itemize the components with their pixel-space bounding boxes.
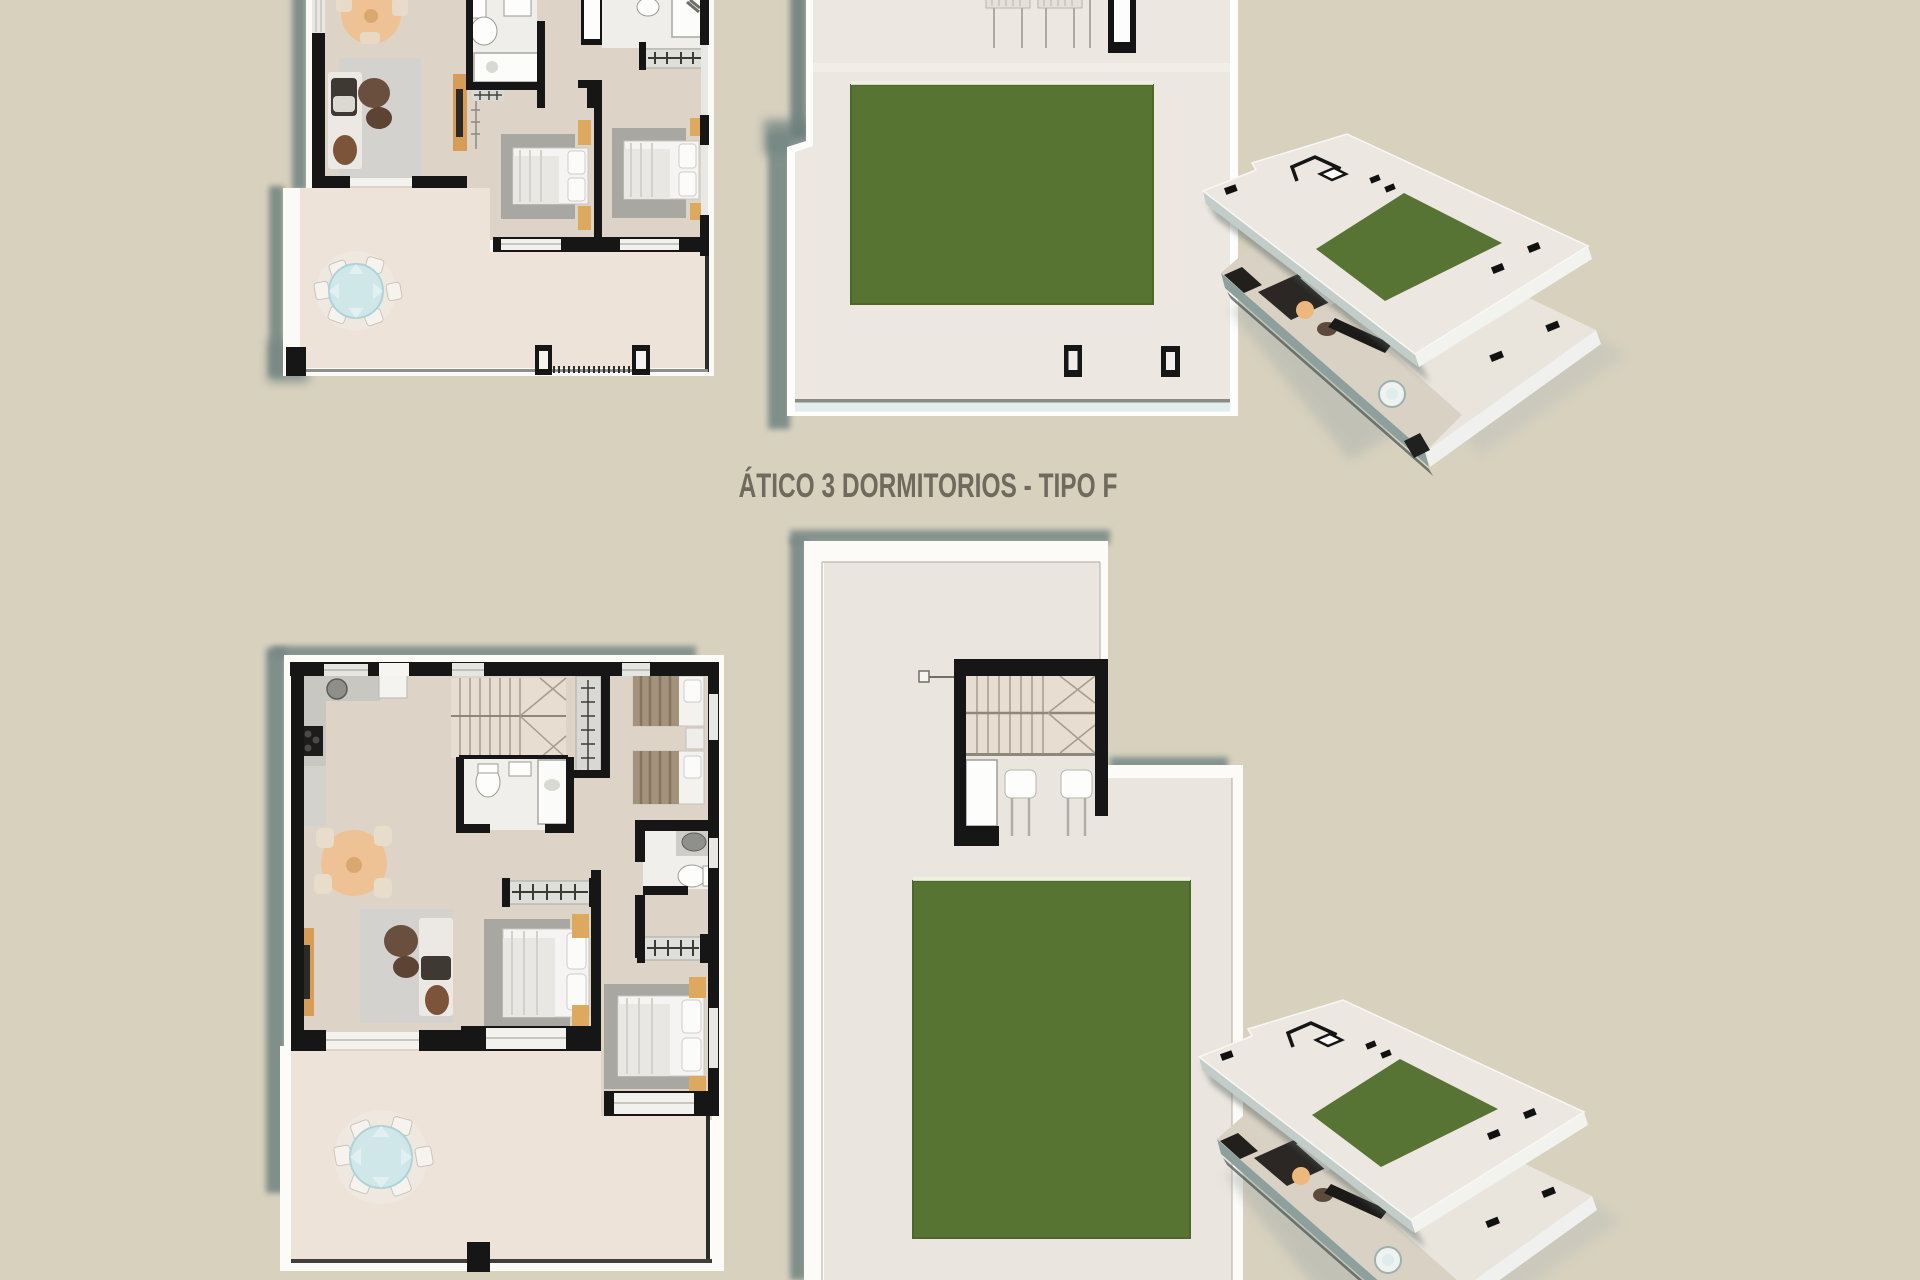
svg-text:ÁTICO 3 DORMITORIOS - TIPO F: ÁTICO 3 DORMITORIOS - TIPO F <box>739 466 1118 505</box>
